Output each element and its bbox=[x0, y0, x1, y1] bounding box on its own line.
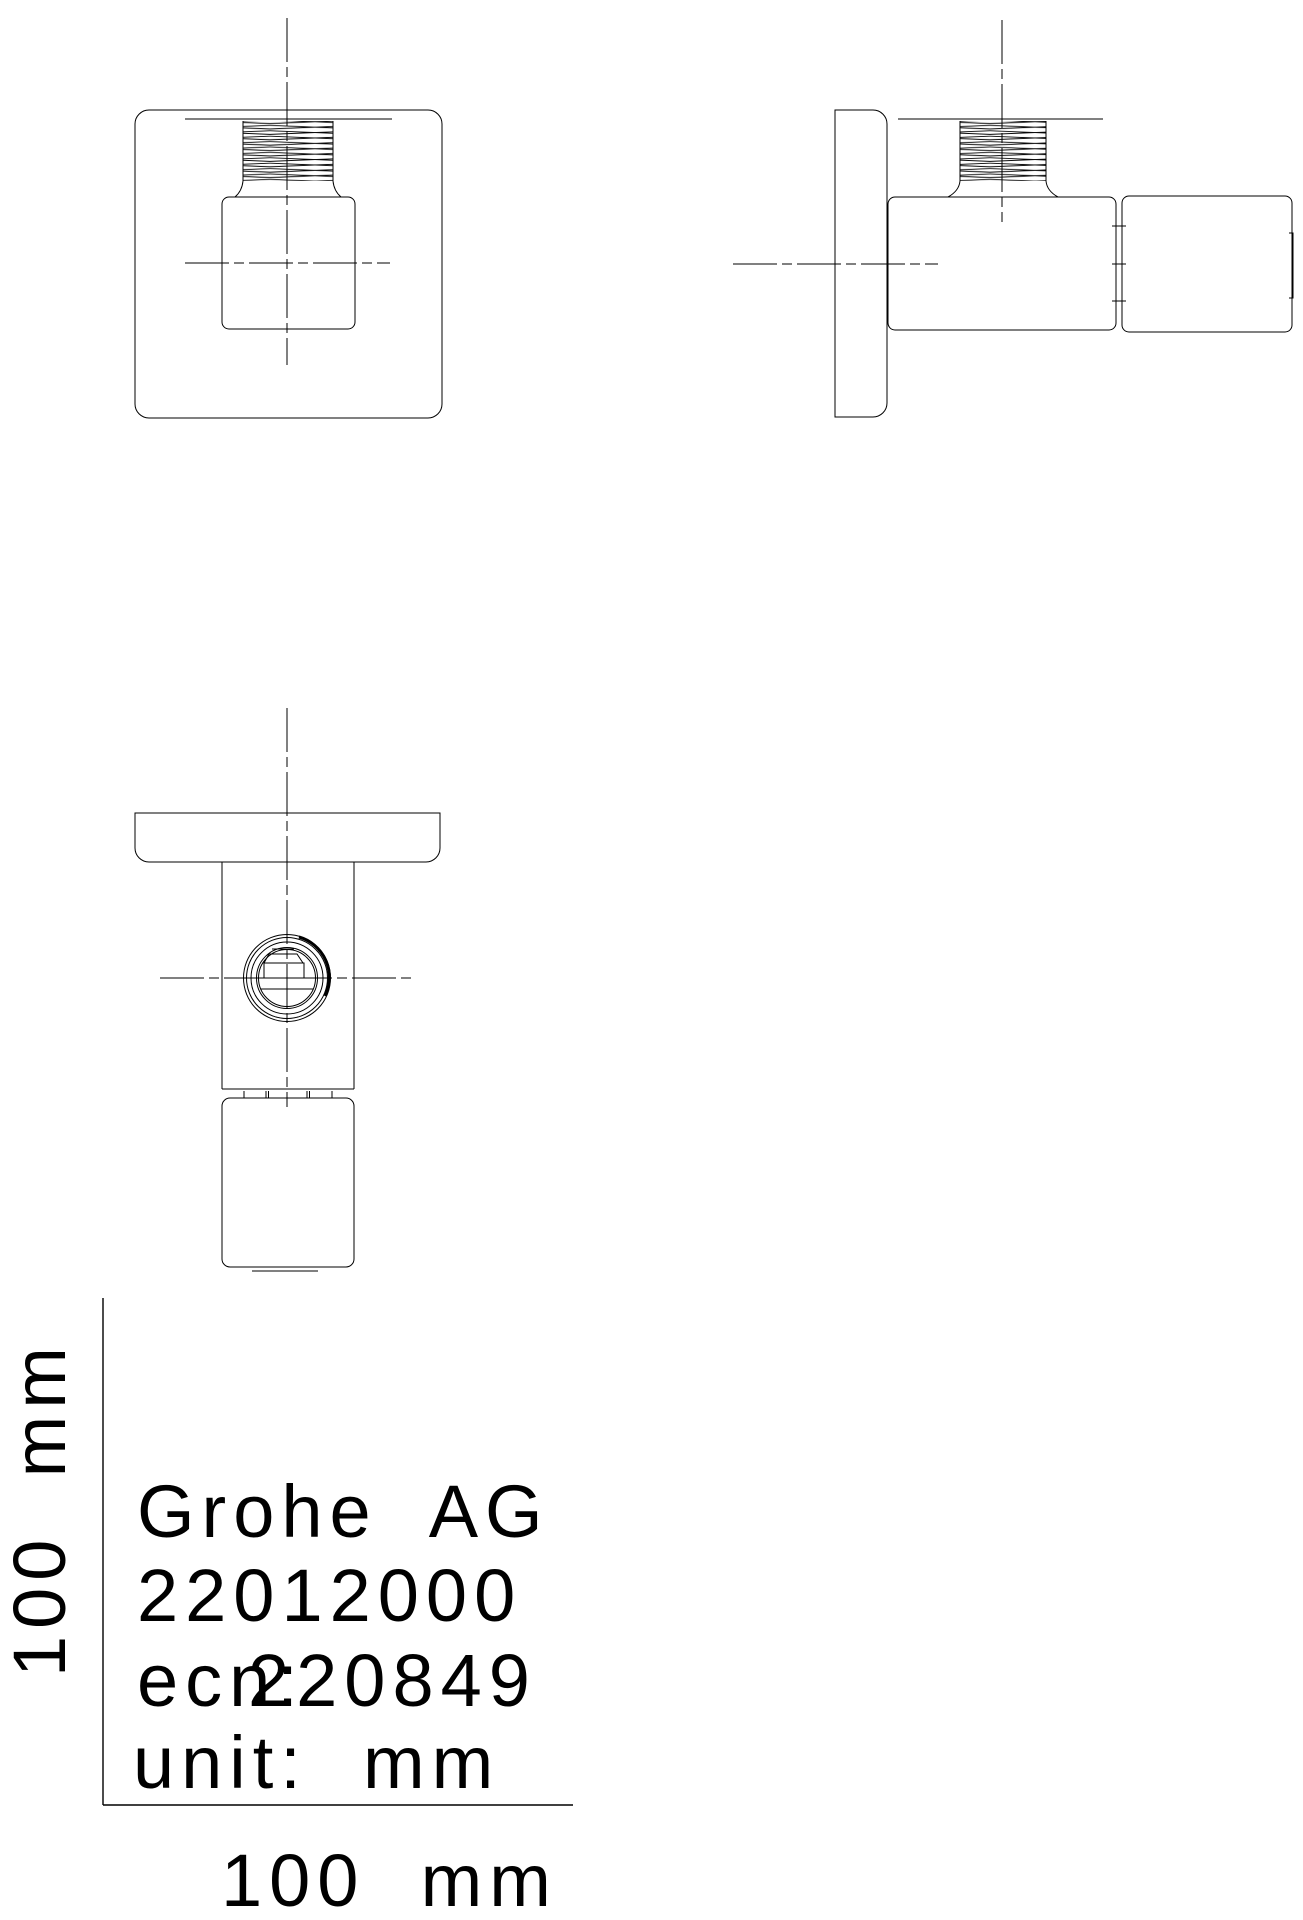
title-company: Grohe AG bbox=[137, 1475, 550, 1549]
thread-hatch-side bbox=[960, 121, 1046, 181]
thread-flare bbox=[333, 181, 341, 197]
cad-drawing-sheet: Grohe AG 22012000 ecn: 220849 unit: mm 1… bbox=[0, 0, 1303, 1920]
vertical-scale-label: 100 mm bbox=[3, 1340, 77, 1677]
aerator-cap-base bbox=[264, 963, 304, 978]
front-view-drawing bbox=[135, 18, 442, 418]
thread-flare bbox=[235, 181, 243, 197]
thread-flare bbox=[948, 181, 960, 197]
bottom-view-drawing bbox=[135, 708, 440, 1271]
handle-knob-bottom bbox=[222, 1098, 354, 1267]
handle-knob-side bbox=[1122, 196, 1292, 332]
thread-flare bbox=[1046, 181, 1058, 197]
title-ecn-number: 220849 bbox=[248, 1644, 537, 1718]
thread-hatch-front bbox=[243, 121, 333, 181]
horizontal-scale-label: 100 mm bbox=[221, 1844, 558, 1918]
title-unit-line: unit: mm bbox=[133, 1726, 500, 1800]
title-product-number: 22012000 bbox=[137, 1559, 522, 1633]
side-view-drawing bbox=[733, 20, 1293, 417]
